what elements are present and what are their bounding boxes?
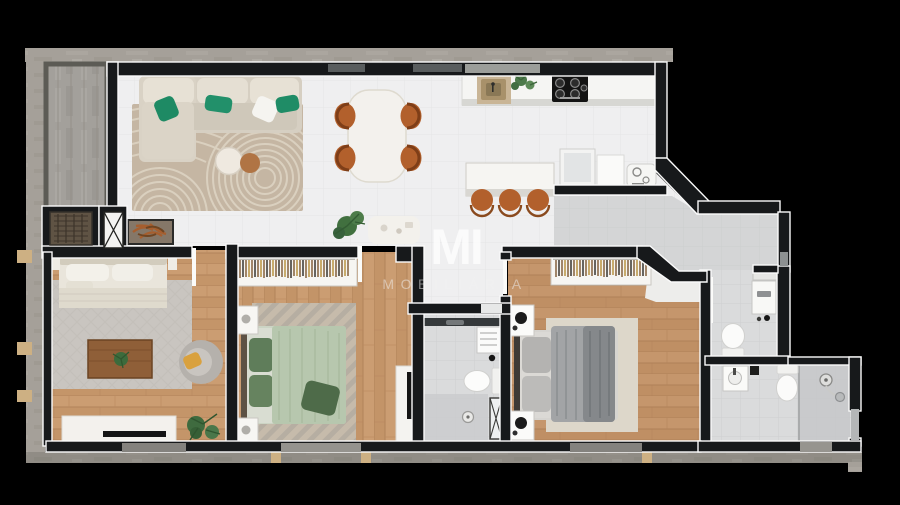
svg-text:MOBILIÁRIA: MOBILIÁRIA — [382, 276, 527, 292]
svg-text:MI: MI — [430, 219, 482, 275]
